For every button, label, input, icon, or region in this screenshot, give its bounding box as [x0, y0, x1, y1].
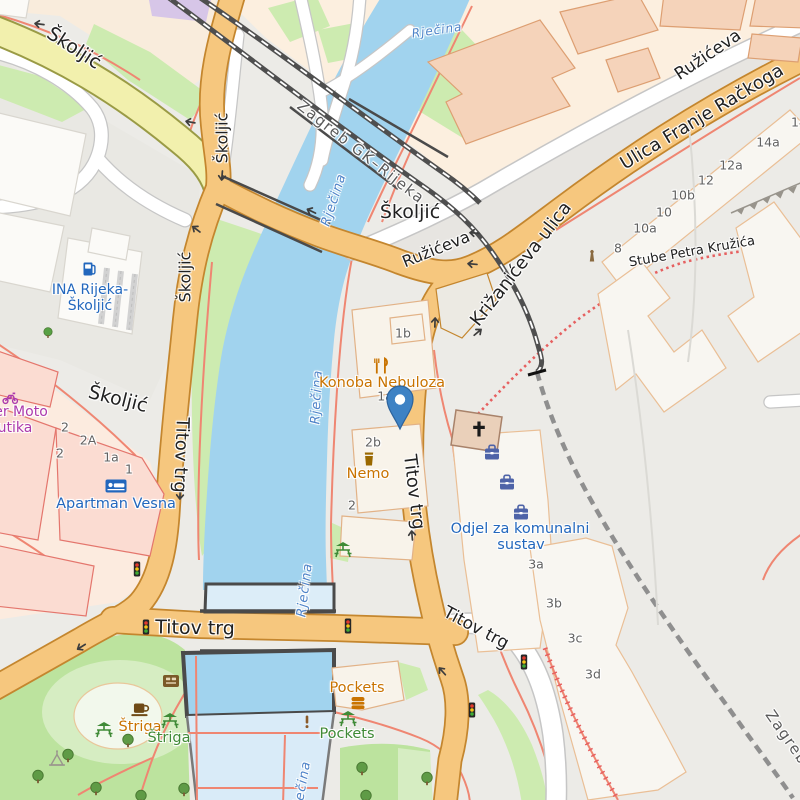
kiosk-icon: [163, 675, 179, 687]
traffic-light-icon: [521, 655, 527, 670]
artwork-icon: [306, 716, 309, 729]
tree-icon: [361, 790, 371, 800]
tree-icon: [136, 790, 146, 800]
location-marker-pin[interactable]: [383, 383, 417, 431]
marker-pin-icon: [383, 383, 417, 431]
map-canvas[interactable]: ŠkoljićŠkoljićŠkoljićŠkoljićŠkoljićTitov…: [0, 0, 800, 800]
traffic-light-icon: [345, 619, 351, 634]
traffic-light-icon: [143, 620, 149, 635]
drink-cup-icon: [365, 453, 374, 466]
traffic-light-icon: [134, 562, 140, 577]
burger-icon: [352, 697, 365, 709]
traffic-light-icon: [469, 703, 475, 718]
bed-icon: [106, 480, 127, 493]
